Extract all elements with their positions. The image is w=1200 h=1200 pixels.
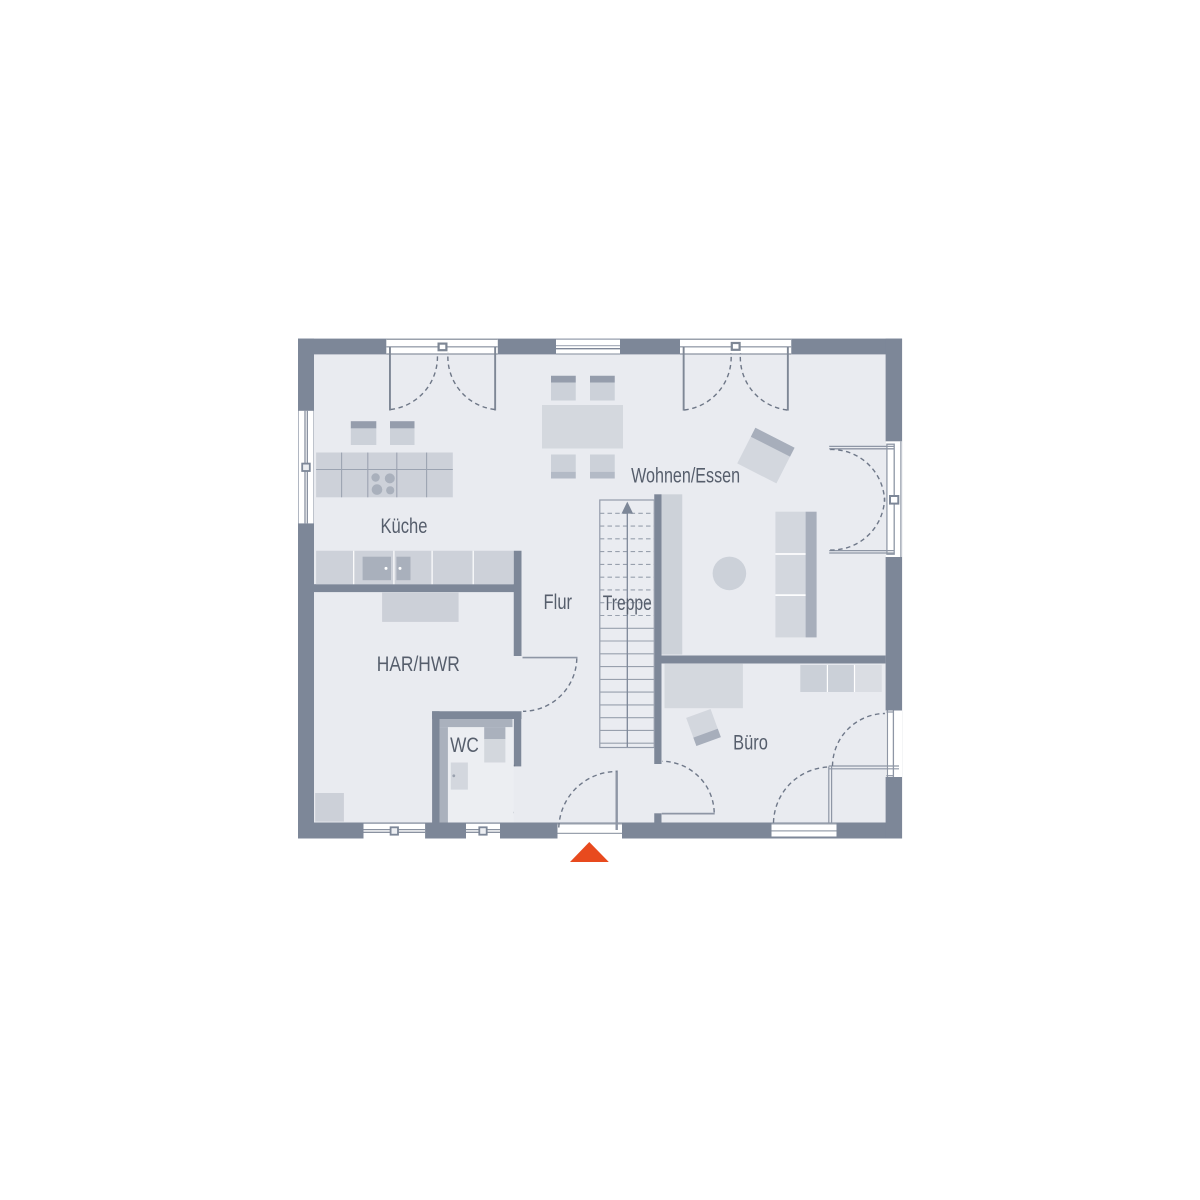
- svg-text:Büro: Büro: [733, 731, 768, 754]
- svg-text:Flur: Flur: [544, 591, 573, 614]
- svg-text:WC: WC: [450, 734, 479, 757]
- svg-text:Küche: Küche: [381, 515, 428, 538]
- svg-text:Treppe: Treppe: [603, 592, 652, 615]
- svg-text:Wohnen/Essen: Wohnen/Essen: [631, 464, 740, 487]
- svg-text:HAR/HWR: HAR/HWR: [377, 653, 460, 676]
